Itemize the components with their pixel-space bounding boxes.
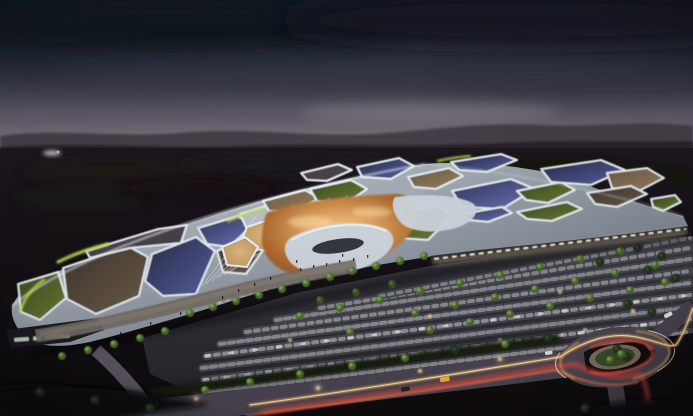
vignette-overlay — [0, 0, 693, 416]
architectural-night-rendering — [0, 0, 693, 416]
scene-canvas — [0, 0, 693, 416]
